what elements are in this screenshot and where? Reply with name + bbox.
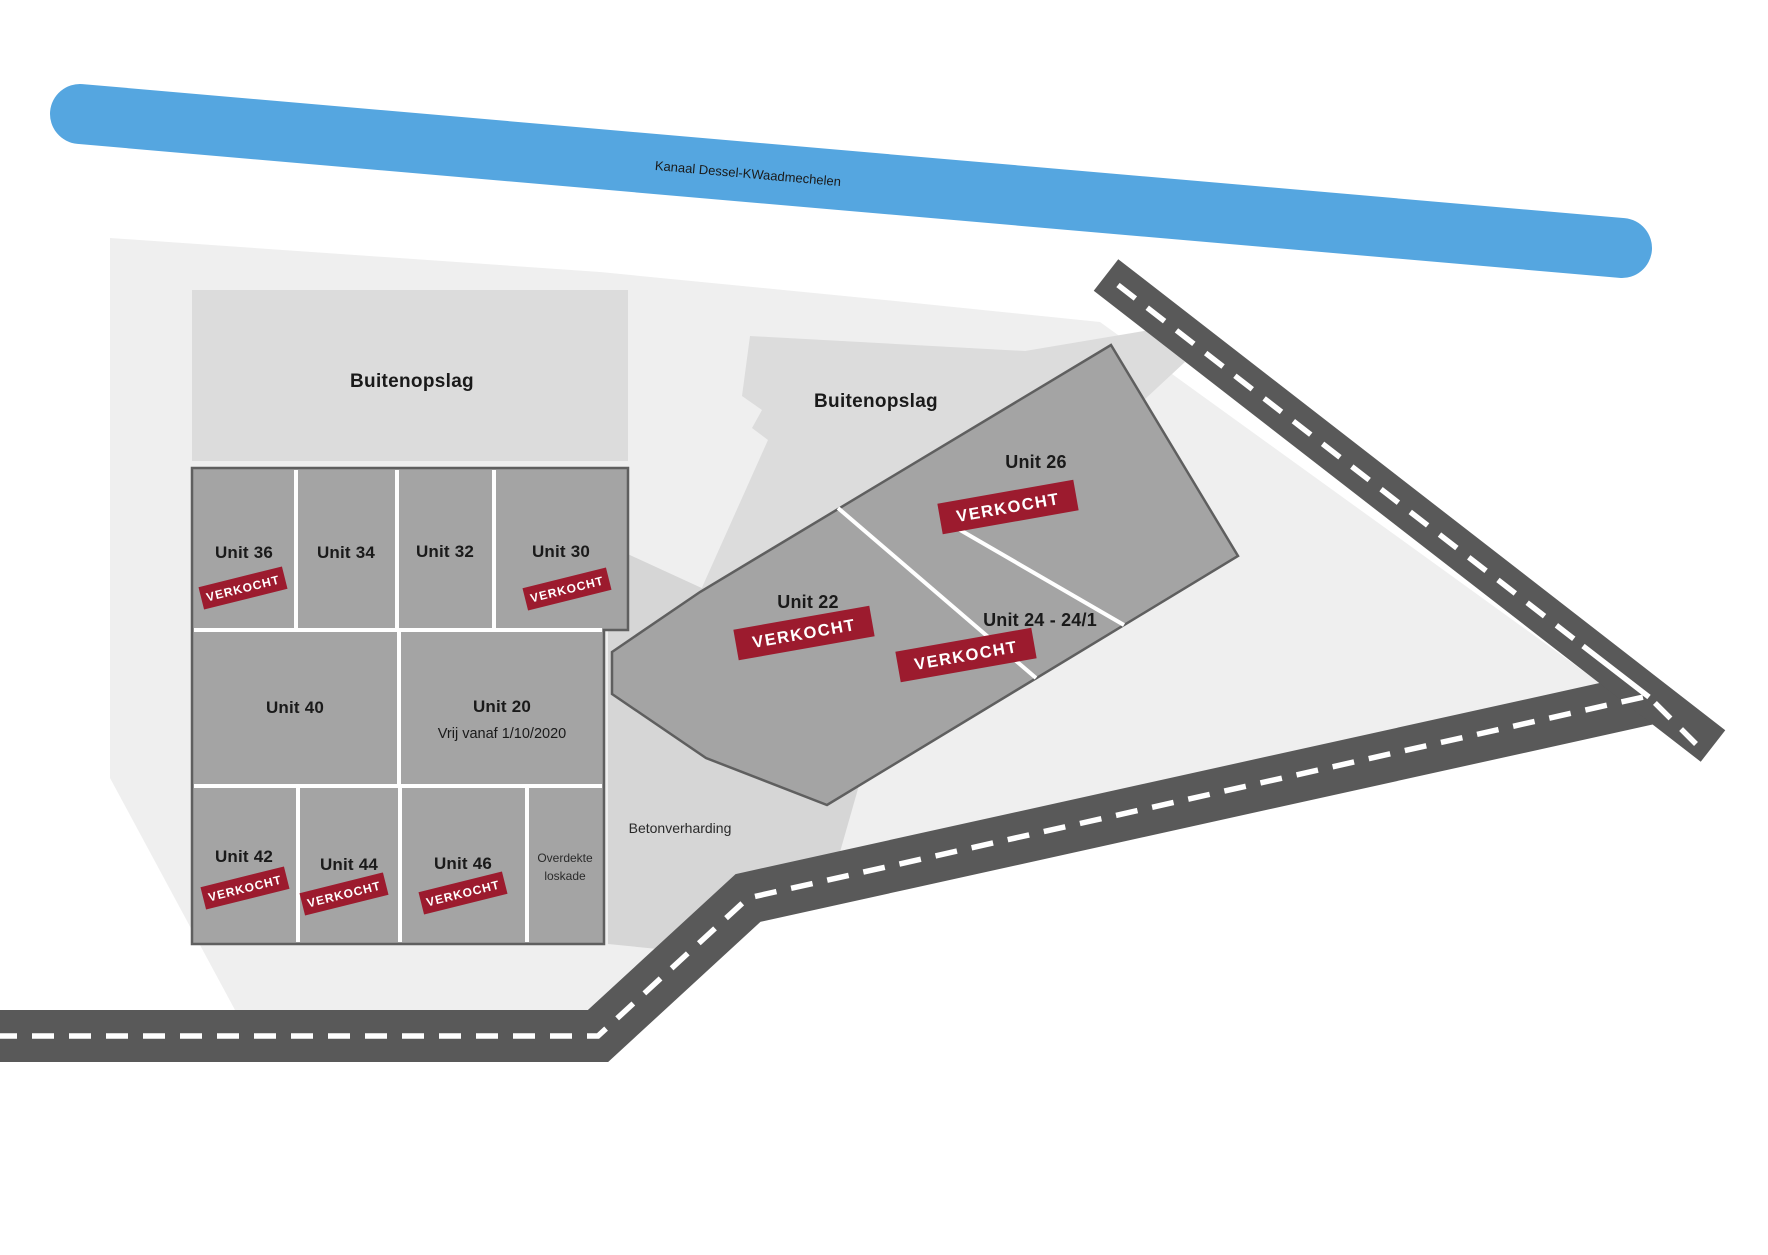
unit-34[interactable]: Unit 34: [317, 543, 375, 562]
outdoor-storage-left-label: Buitenopslag: [350, 371, 474, 392]
unit-44-label: Unit 44: [320, 855, 378, 874]
unit-20-availability-note: Vrij vanaf 1/10/2020: [438, 726, 566, 742]
site-plan: Kanaal Dessel-KWaadmechelen Buitenopslag: [0, 0, 1768, 1250]
unit-22-label: Unit 22: [777, 592, 838, 612]
unit-26-label: Unit 26: [1005, 452, 1066, 472]
unit-42-label: Unit 42: [215, 847, 273, 866]
unit-32-label: Unit 32: [416, 542, 474, 561]
unit-40-label: Unit 40: [266, 698, 324, 717]
unit-20-label: Unit 20: [473, 697, 531, 716]
loading-dock-label-line2: loskade: [544, 869, 586, 883]
canal: Kanaal Dessel-KWaadmechelen: [80, 114, 1622, 248]
site-plan-svg: Kanaal Dessel-KWaadmechelen Buitenopslag: [0, 0, 1768, 1250]
concrete-paving-label: Betonverharding: [629, 820, 732, 836]
unit-30-label: Unit 30: [532, 542, 590, 561]
canal-water: [80, 114, 1622, 248]
unit-46-label: Unit 46: [434, 854, 492, 873]
unit-36-label: Unit 36: [215, 543, 273, 562]
outdoor-storage-right-label: Buitenopslag: [814, 391, 938, 412]
unit-34-label: Unit 34: [317, 543, 375, 562]
unit-40[interactable]: Unit 40: [266, 698, 324, 717]
unit-24-label: Unit 24 - 24/1: [983, 610, 1097, 630]
unit-32[interactable]: Unit 32: [416, 542, 474, 561]
loading-dock-label-line1: Overdekte: [537, 851, 593, 865]
